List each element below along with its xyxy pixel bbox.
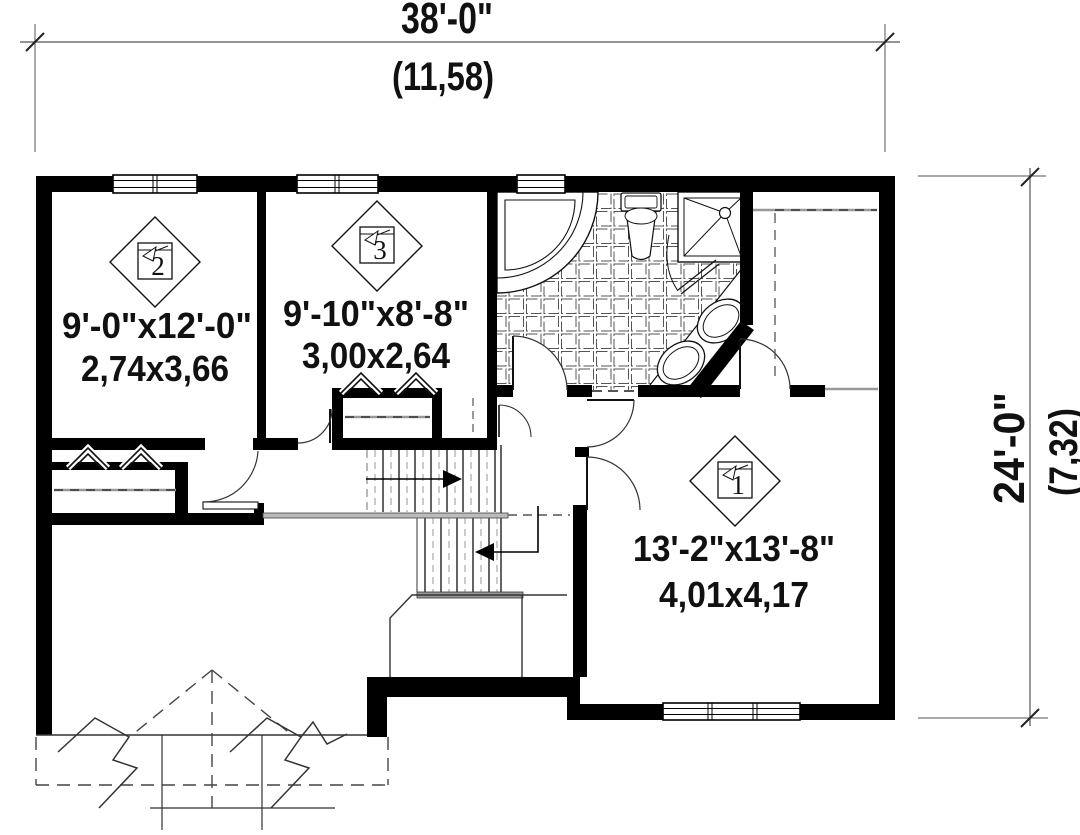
- bedroom3-door: [298, 409, 332, 443]
- room-number: 1: [731, 470, 745, 500]
- bedroom1-door-lower: [587, 457, 640, 510]
- room-label-bedroom2: 2 9'-0"x12'-0" 2,74x3,66: [62, 217, 252, 389]
- stairs-up-arrow: [366, 470, 462, 488]
- room-size-imperial: 9'-10"x8'-8": [283, 293, 469, 334]
- room-size-metric: 4,01x4,17: [659, 574, 809, 615]
- roof-dashed-lines: [36, 670, 388, 808]
- room-number: 2: [151, 251, 165, 281]
- dimension-right: 24'-0" (7,32): [918, 168, 1080, 727]
- stairs: [263, 445, 570, 677]
- stair-railing: [263, 513, 508, 518]
- bedroom2-door: [203, 451, 258, 509]
- room-size-metric: 3,00x2,64: [302, 335, 450, 376]
- room-size-metric: 2,74x3,66: [81, 348, 229, 389]
- break-line-icon: [230, 718, 309, 808]
- room-size-imperial: 13'-2"x13'-8": [633, 528, 835, 569]
- stair-treads-lower: [417, 517, 489, 592]
- dimension-top: 38'-0" (11,58): [20, 0, 900, 152]
- top-dimension-metric: (11,58): [392, 55, 494, 99]
- shower-drain: [720, 208, 731, 219]
- floor-plan-canvas: 38'-0" (11,58) 24'-0" (7,32): [0, 0, 1080, 835]
- break-line-icon: [58, 718, 137, 808]
- right-dimension-imperial: 24'-0": [985, 392, 1034, 504]
- linen-closet-door: [499, 405, 531, 437]
- floor-plan-page: 38'-0" (11,58) 24'-0" (7,32): [0, 0, 1080, 835]
- room-number: 3: [373, 235, 387, 265]
- closet-bedroom1: [753, 210, 877, 383]
- roof-outline: [36, 670, 388, 830]
- room-label-bedroom1: 1 13'-2"x13'-8" 4,01x4,17: [633, 436, 835, 615]
- window-triple: [663, 703, 800, 720]
- top-dimension-imperial: 38'-0": [401, 0, 493, 43]
- entry-vestibule-outline: [390, 595, 567, 677]
- right-dimension-metric: (7,32): [1042, 408, 1080, 496]
- window: [113, 175, 197, 193]
- room-label-bedroom3: 3 9'-10"x8'-8" 3,00x2,64: [283, 201, 469, 376]
- window: [517, 175, 565, 193]
- bedroom1-door-upper: [587, 400, 634, 447]
- room-size-imperial: 9'-0"x12'-0": [62, 305, 252, 346]
- walkin-closet-door: [740, 339, 790, 389]
- window: [297, 175, 378, 193]
